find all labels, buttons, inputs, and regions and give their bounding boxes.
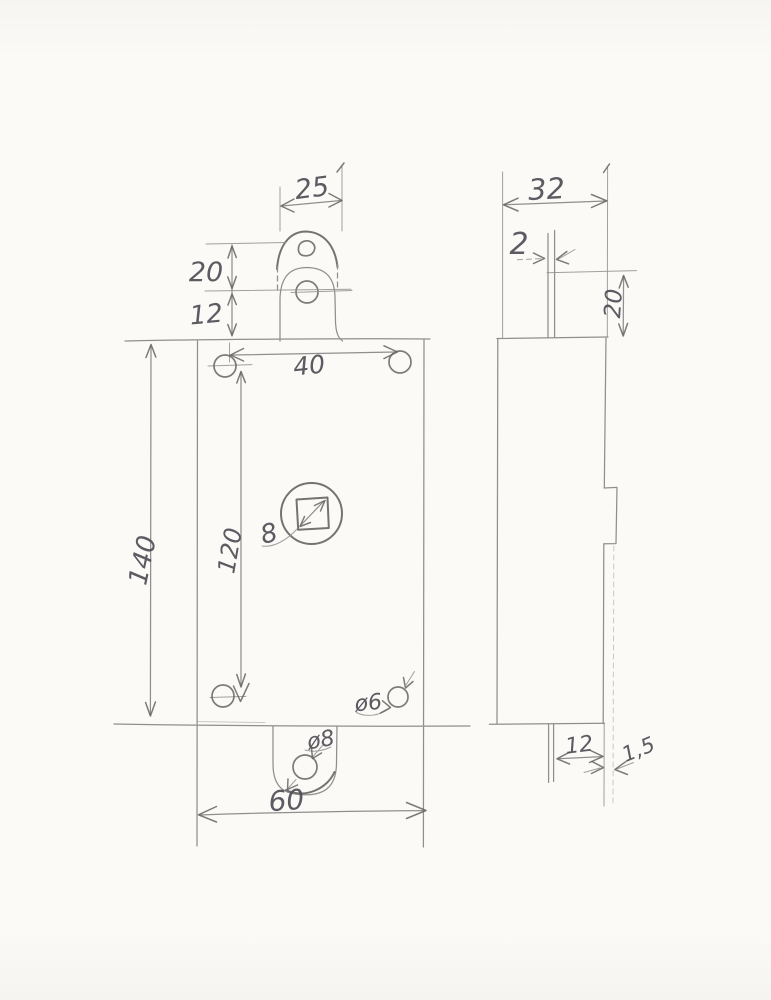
- dim-label-bar-bottom-offset: 12: [564, 731, 595, 759]
- side-bar-bottom-lines: [549, 724, 554, 783]
- technical-drawing: 25 20 12 40 140 120 8 ø6: [0, 0, 771, 1000]
- dim-top-holes-span: 40: [231, 346, 398, 382]
- mounting-hole-bottom-left: [212, 685, 234, 707]
- dim-label-holes-vertical-span: 120: [212, 526, 248, 576]
- dim-bar-thickness-arrowheads: [534, 252, 569, 264]
- dim-top-hole-gaps: 20 12: [189, 243, 351, 337]
- side-bar-shoulder-line: [547, 271, 637, 273]
- top-tab-hole-centerline: [291, 291, 352, 293]
- front-body-overdraw: [197, 722, 265, 723]
- side-latch-protrusion: [603, 487, 617, 723]
- dim-label-plate-thickness: 1,5: [618, 732, 658, 767]
- dim-holes-vertical-span: 120: [212, 372, 249, 702]
- dim-label-spindle-square: 8: [257, 518, 280, 551]
- dim-label-top-holes-span: 40: [292, 349, 327, 381]
- mounting-hole-bottom-right: [388, 687, 408, 707]
- dim-body-width: 60: [199, 783, 427, 822]
- front-body-outline: [114, 339, 470, 847]
- dim-bar-thickness: 2: [509, 227, 575, 264]
- top-tab-lower-outline: [280, 268, 343, 342]
- dim-label-tab-width: 25: [293, 171, 331, 206]
- dim-label-bottom-right-hole: ø6: [352, 690, 383, 718]
- dim-label-body-height: 140: [123, 533, 163, 588]
- top-tab-upper-hole: [298, 241, 314, 256]
- top-tab-upper-arc: [277, 232, 338, 270]
- spindle-diagonal-line: [301, 501, 325, 526]
- dim-bottom-right-hole: ø6: [352, 672, 414, 718]
- dim-tab-width: 25: [280, 163, 344, 231]
- side-body-outline: [490, 337, 609, 724]
- dim-label-bottom-tab-hole: ø8: [304, 726, 336, 756]
- sketch-paper: 25 20 12 40 140 120 8 ø6: [0, 0, 771, 1000]
- top-tab-dashed-sides: [278, 264, 338, 292]
- dim-label-body-width: 60: [267, 783, 305, 818]
- dim-plate-arrowheads: [592, 762, 628, 775]
- dim-label-bar-top-length: 20: [600, 288, 628, 319]
- dim-label-bar-thickness: 2: [509, 227, 528, 262]
- side-bar-top-lines: [548, 231, 555, 339]
- dim-body-height: 140: [123, 345, 163, 717]
- front-top-tab: [277, 232, 352, 342]
- side-faceplate-hidden-line: [613, 546, 614, 803]
- dim-label-lower-hole-gap: 12: [189, 299, 225, 332]
- dim-bar-top-length: 20: [600, 276, 628, 337]
- dim-label-upper-hole-gap: 20: [189, 257, 223, 288]
- dim-label-body-depth: 32: [527, 171, 566, 207]
- dim-body-width-line: [200, 811, 425, 815]
- dim-bar-bottom-offset: 12: [557, 731, 603, 764]
- front-body: [114, 339, 470, 847]
- side-view: 32 2 20 12 1,5: [490, 164, 659, 806]
- dim-body-height-line: [150, 346, 151, 715]
- hole-centerlines: [208, 343, 252, 698]
- front-view: 25 20 12 40 140 120 8 ø6: [114, 163, 470, 847]
